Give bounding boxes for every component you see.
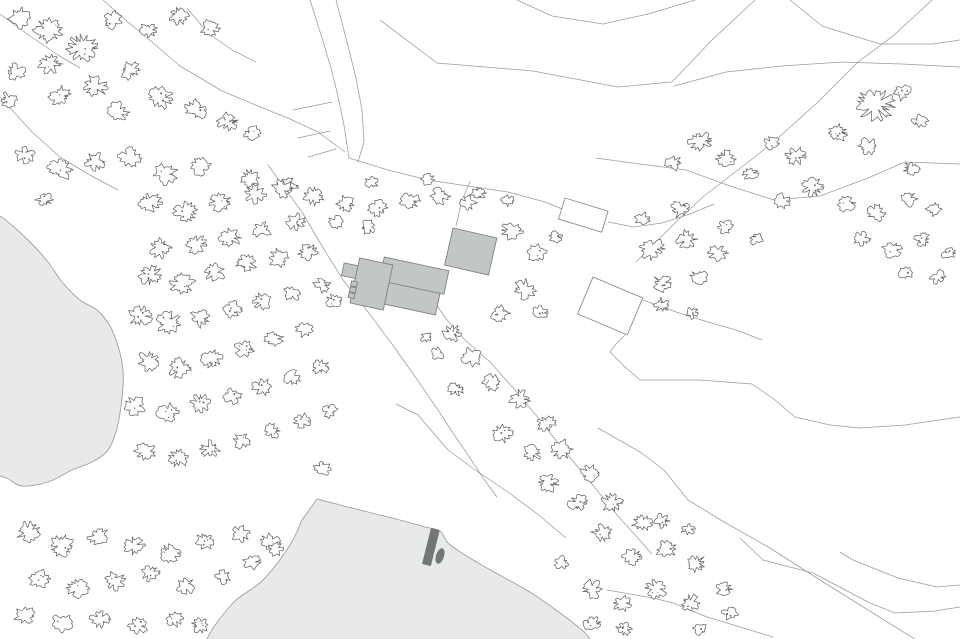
tree-dot [184, 286, 185, 287]
tree-dot [137, 316, 139, 318]
contour-line [336, 0, 364, 162]
tree-dot [246, 345, 248, 347]
contour-line [610, 352, 960, 428]
tree [87, 529, 107, 545]
tree-dot [725, 589, 727, 591]
tree [236, 255, 257, 272]
tree-dot [147, 277, 149, 279]
tree [169, 273, 195, 294]
tree-dot [915, 122, 917, 124]
tree-dot [11, 73, 13, 75]
tree [500, 195, 514, 207]
tree-dot [519, 288, 520, 289]
tree [190, 394, 211, 413]
tree-dot [40, 575, 41, 576]
tree-dot [5, 101, 7, 103]
tree-dot [140, 621, 142, 623]
tree [15, 147, 35, 165]
tree-dot [26, 151, 28, 153]
tree [742, 168, 759, 179]
tree-dot [949, 250, 951, 252]
tree-dot [576, 506, 578, 508]
tree [583, 579, 603, 599]
tree [828, 124, 848, 141]
tree-dot [42, 27, 44, 29]
site-plan-frame [0, 0, 960, 639]
tree-dot [169, 318, 171, 320]
tree-dot [233, 393, 235, 395]
tree [671, 202, 690, 219]
tree-dot [442, 198, 444, 200]
tree [297, 244, 318, 260]
tree-dot [179, 17, 180, 18]
tree-dot [331, 303, 332, 304]
tree-dot [662, 284, 664, 286]
tree-dot [496, 314, 498, 316]
tree-dot [664, 307, 666, 309]
tree-dot [447, 331, 449, 333]
tree-dot [379, 207, 381, 209]
tree [200, 440, 221, 457]
tree [205, 263, 225, 282]
tree [533, 306, 549, 318]
tree-dot [164, 551, 165, 552]
tree-dot [106, 23, 107, 24]
tree-dot [664, 284, 666, 286]
tree-dot [224, 117, 226, 119]
tree [613, 595, 631, 611]
tree [420, 173, 434, 185]
tree-dot [326, 284, 328, 286]
tree-dot [444, 193, 446, 195]
tree [690, 271, 708, 285]
tree-dot [134, 625, 136, 627]
tree-dot [207, 539, 208, 540]
tree-dot [754, 236, 755, 237]
tree-dot [97, 615, 98, 616]
tree-dot [58, 174, 59, 175]
tree [124, 537, 146, 555]
tree-dot [28, 158, 30, 160]
contour-line [308, 149, 336, 157]
tree [551, 439, 573, 459]
tree-dot [333, 299, 335, 301]
tree-dot [322, 463, 323, 464]
tree [293, 413, 311, 428]
tree [138, 193, 163, 212]
tree [501, 223, 523, 240]
tree [904, 162, 921, 175]
tree-dot [837, 135, 839, 137]
tree-dot [580, 501, 582, 503]
tree [223, 300, 243, 318]
tree-dot [165, 549, 167, 551]
tree-dot [258, 384, 260, 386]
tree [448, 383, 464, 396]
tree-dot [590, 625, 592, 627]
tree [177, 578, 195, 595]
tree-dot [500, 432, 502, 434]
tree [118, 147, 142, 167]
lake-bottom [179, 499, 626, 639]
tree [35, 193, 54, 206]
tree-dot [839, 133, 841, 135]
tree [156, 402, 180, 422]
tree-dot [687, 605, 689, 607]
tree-dot [692, 312, 694, 314]
tree [591, 524, 612, 542]
tree-dot [77, 585, 78, 586]
tree-dot [64, 547, 66, 549]
tree [716, 582, 732, 596]
tree [251, 379, 271, 396]
tree [493, 424, 514, 443]
contour-line [187, 8, 256, 62]
contour-line [674, 62, 960, 86]
tree-dot [230, 308, 232, 310]
tree-dot [186, 285, 188, 287]
tree [785, 147, 806, 165]
tree-dot [539, 312, 541, 314]
contour-line [293, 102, 332, 110]
tree [233, 434, 250, 449]
tree-dot [727, 588, 729, 590]
tree-dot [835, 133, 836, 134]
tree [270, 248, 289, 268]
tree [901, 193, 918, 208]
tree [122, 62, 141, 81]
tree-dot [907, 272, 909, 274]
tree [482, 374, 501, 392]
tree [150, 237, 173, 259]
tree [420, 333, 431, 342]
tree-dot [46, 201, 48, 203]
tree-dot [319, 364, 320, 365]
tree-dot [730, 615, 732, 617]
tree-dot [574, 500, 576, 502]
tree-dot [109, 23, 111, 25]
tree-dot [659, 523, 661, 525]
tree-dot [174, 13, 176, 15]
tree-dot [90, 81, 91, 82]
main-building [336, 249, 449, 321]
tree-dot [171, 409, 172, 410]
tree-dot [239, 345, 240, 346]
tree [715, 150, 736, 167]
tree [583, 617, 601, 630]
tree-dot [328, 407, 330, 409]
tree-dot [617, 504, 619, 506]
contour-line [607, 590, 773, 637]
contour-line [608, 204, 714, 227]
tree [284, 287, 301, 301]
tree-dot [730, 161, 732, 163]
tree-dot [226, 579, 228, 581]
tree [173, 201, 198, 222]
tree-dot [658, 301, 659, 302]
tree-dot [660, 301, 662, 303]
tree-dot [665, 519, 667, 521]
tree-dot [537, 255, 538, 256]
tree-dot [594, 475, 595, 476]
tree [192, 618, 209, 634]
tree-dot [542, 312, 544, 314]
tree-dot [97, 89, 99, 91]
tree-dot [209, 362, 211, 364]
tree-dot [300, 418, 302, 420]
tree-dot [671, 548, 672, 549]
tree-dot [946, 251, 948, 253]
tree-dot [363, 227, 365, 229]
tree-dot [248, 132, 249, 133]
tree [432, 347, 444, 360]
tree-dot [42, 576, 44, 578]
tree [491, 305, 511, 322]
tree [854, 231, 871, 246]
tree-dot [478, 196, 479, 197]
tree-dot [551, 426, 553, 428]
tree [323, 404, 339, 418]
tree-dot [214, 444, 216, 446]
tree [107, 101, 130, 120]
tree-dot [201, 623, 202, 624]
tree-dot [199, 109, 201, 111]
tree [264, 331, 284, 346]
tree-dot [660, 544, 661, 545]
tree-dot [684, 600, 686, 602]
tree-dot [38, 579, 40, 581]
tree-dot [921, 237, 923, 239]
tree [867, 204, 886, 222]
tree-dot [111, 578, 112, 579]
tree-dot [56, 545, 57, 546]
tree [223, 388, 242, 405]
tree-dot [235, 233, 236, 234]
tree-dot [689, 315, 690, 316]
tree [929, 269, 946, 284]
tree [399, 193, 420, 209]
tree [717, 220, 733, 234]
outbuilding-lower [577, 277, 642, 335]
tree-dot [565, 565, 567, 567]
tree [460, 196, 478, 211]
tree-dot [296, 222, 297, 223]
tree [681, 523, 695, 535]
tree [214, 569, 230, 584]
tree-dot [60, 170, 62, 172]
tree-dot [889, 251, 891, 253]
main-building-wing [349, 287, 356, 293]
tree [336, 195, 354, 212]
tree-dot [619, 627, 620, 628]
tree-dot [919, 241, 921, 243]
tree-dot [258, 302, 259, 303]
tree [313, 279, 331, 294]
tree [243, 556, 262, 570]
tree-dot [369, 229, 371, 231]
tree [185, 236, 207, 254]
tree [328, 215, 343, 228]
tree [149, 86, 174, 109]
tree [252, 293, 271, 310]
tree [232, 525, 250, 543]
outbuilding-upper [559, 198, 608, 232]
tree-dot [587, 621, 589, 623]
tree-dot [149, 355, 150, 356]
tree [707, 246, 729, 262]
tree-dot [795, 157, 797, 159]
tree [911, 114, 929, 127]
tree-dot [456, 385, 458, 387]
tree [265, 423, 281, 438]
tree-dot [789, 153, 791, 155]
tree-dot [683, 241, 685, 243]
tree [653, 297, 669, 311]
tree [538, 474, 559, 492]
tree [925, 202, 942, 216]
tree-dot [55, 25, 56, 26]
contour-line [636, 0, 932, 262]
tree [104, 10, 122, 29]
tree [656, 540, 676, 556]
tree-dot [771, 145, 773, 147]
tree [893, 85, 911, 101]
tree-dot [3, 102, 5, 104]
tree-dot [584, 475, 586, 477]
tree [253, 222, 272, 237]
tree [676, 229, 698, 248]
tree [527, 244, 547, 261]
lake-left [0, 210, 123, 486]
tree-dot [204, 540, 206, 542]
tree-dot [224, 206, 225, 207]
tree [153, 163, 178, 186]
tree [681, 594, 700, 611]
tree [85, 153, 106, 172]
tree-dot [699, 566, 701, 568]
tree [515, 278, 537, 300]
tree [313, 360, 330, 374]
tree-dot [916, 120, 917, 121]
tree-dot [550, 484, 552, 486]
tree [168, 449, 189, 467]
tree-dot [208, 446, 209, 447]
tree-dot [150, 575, 151, 576]
tree-dot [24, 157, 26, 159]
tree-dot [726, 613, 728, 615]
tree-dot [523, 403, 525, 405]
outbuilding-gray [445, 228, 497, 275]
contour-line [740, 538, 960, 613]
tree-dot [843, 203, 844, 204]
tree-dot [10, 71, 12, 73]
tree [234, 341, 254, 358]
tree-dot [901, 90, 903, 92]
tree [941, 248, 955, 259]
tree-dot [195, 625, 197, 627]
tree [688, 132, 712, 151]
tree-dot [59, 94, 60, 95]
tree [138, 265, 162, 285]
tree-dot [454, 334, 456, 336]
tree-dot [613, 503, 614, 504]
tree-dot [182, 216, 184, 218]
tree [53, 615, 73, 633]
tree [38, 54, 63, 74]
tree [837, 196, 856, 212]
tree-dot [458, 386, 460, 388]
tree [645, 580, 667, 600]
tree [461, 347, 481, 367]
tree [653, 276, 672, 292]
tree-dot [683, 204, 685, 206]
tree-dot [261, 233, 262, 234]
tree [47, 159, 74, 180]
tree-dot [533, 455, 535, 457]
tree-dot [142, 312, 144, 314]
tree [632, 515, 653, 531]
tree-dot [176, 367, 178, 369]
tree-dot [175, 460, 177, 462]
tree-dot [557, 235, 559, 237]
tree [524, 445, 541, 461]
tree [17, 521, 41, 543]
tree-dot [504, 430, 506, 432]
tree-dot [188, 583, 189, 584]
tree [29, 569, 51, 587]
tree-dot [224, 119, 226, 121]
tree [285, 213, 306, 231]
main-building-wing [342, 263, 358, 279]
tree-dot [479, 195, 481, 197]
tree-dot [596, 587, 598, 589]
tree-dot [174, 370, 176, 372]
tree-dot [814, 184, 816, 186]
tree [140, 24, 158, 38]
tree-dot [98, 84, 99, 85]
tree [368, 200, 389, 218]
contour-line [103, 0, 345, 152]
tree-dot [276, 430, 277, 431]
tree [858, 137, 876, 155]
tree-dot [202, 625, 203, 626]
tree [882, 243, 903, 258]
tree-dot [165, 411, 166, 412]
tree [442, 325, 462, 342]
tree-dot [173, 326, 174, 327]
tree-dot [543, 480, 545, 482]
main-building-wing [351, 281, 358, 287]
tree-dot [161, 170, 162, 171]
tree [1, 92, 18, 108]
tree-dot [906, 90, 908, 92]
tree-dot [488, 380, 489, 381]
tree-dot [684, 235, 685, 236]
tree [303, 187, 324, 206]
tree-dot [168, 417, 169, 418]
tree [722, 607, 739, 620]
tree-dot [211, 451, 213, 453]
tree-dot [246, 350, 247, 351]
tree-dot [199, 401, 201, 403]
tree [185, 99, 207, 119]
tree-dot [221, 200, 222, 201]
tree-dot [162, 100, 164, 102]
tree-dot [165, 94, 167, 96]
tree-dot [691, 607, 692, 608]
tree-dot [207, 29, 208, 30]
site-plan-drawing [0, 0, 960, 639]
